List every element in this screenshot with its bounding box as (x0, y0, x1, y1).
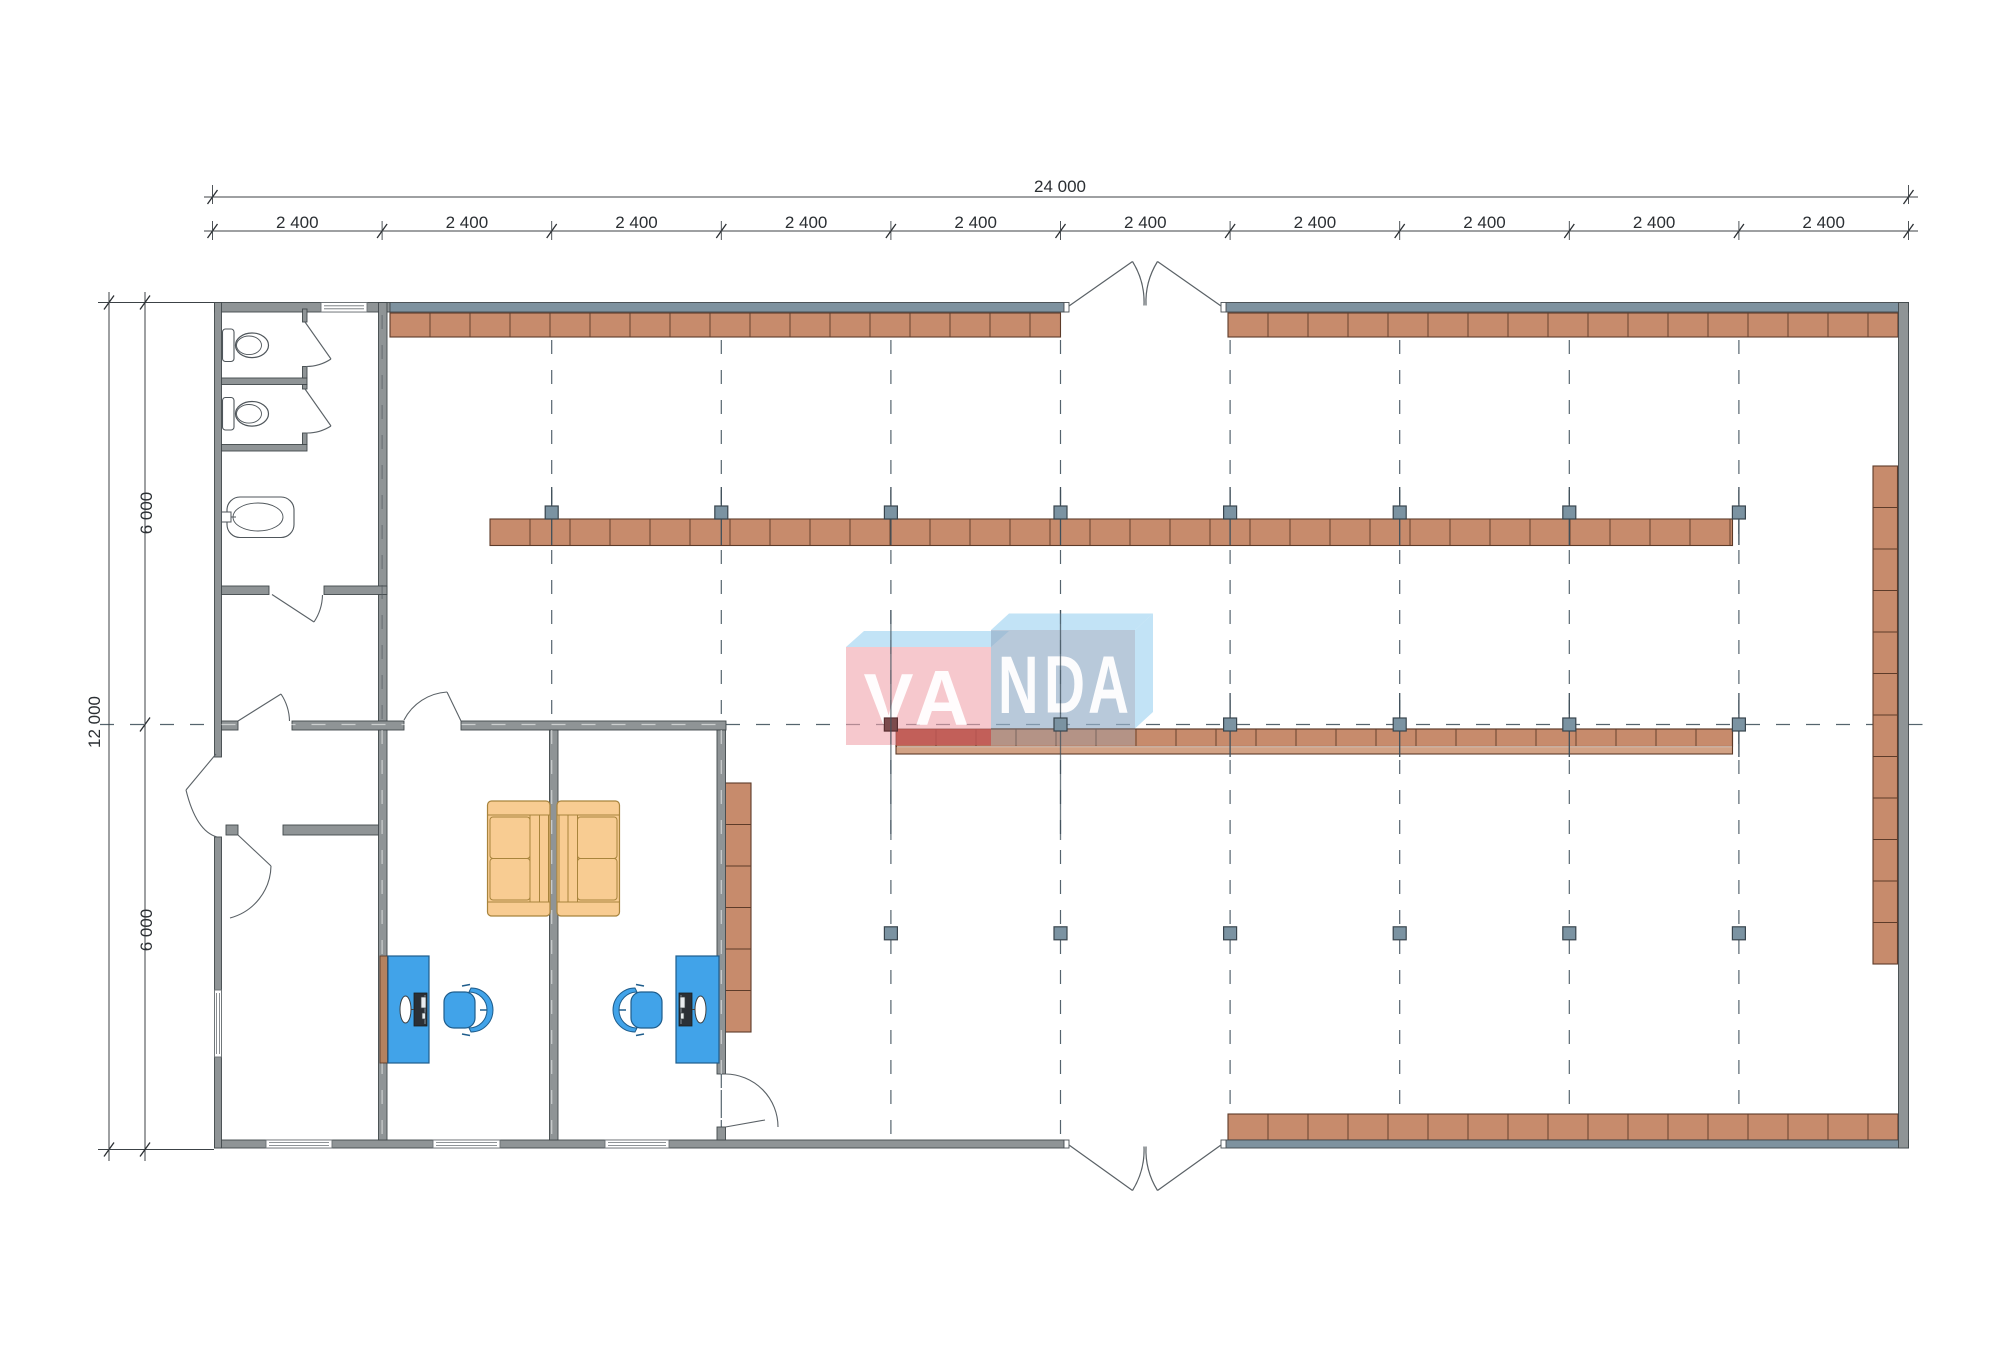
svg-text:A: A (1088, 640, 1129, 731)
svg-text:2 400: 2 400 (954, 213, 997, 232)
svg-text:24 000: 24 000 (1034, 177, 1086, 196)
svg-text:6 000: 6 000 (137, 909, 156, 952)
svg-text:N: N (998, 640, 1039, 731)
svg-text:2 400: 2 400 (785, 213, 828, 232)
svg-text:2 400: 2 400 (276, 213, 319, 232)
svg-text:12 000: 12 000 (85, 696, 104, 748)
svg-text:2 400: 2 400 (1124, 213, 1167, 232)
svg-text:2 400: 2 400 (615, 213, 658, 232)
svg-text:2 400: 2 400 (1802, 213, 1845, 232)
svg-text:2 400: 2 400 (1633, 213, 1676, 232)
svg-text:2 400: 2 400 (1463, 213, 1506, 232)
svg-text:D: D (1044, 640, 1085, 731)
svg-text:2 400: 2 400 (446, 213, 489, 232)
svg-text:A: A (915, 654, 970, 742)
svg-text:6 000: 6 000 (137, 492, 156, 535)
svg-text:2 400: 2 400 (1294, 213, 1337, 232)
